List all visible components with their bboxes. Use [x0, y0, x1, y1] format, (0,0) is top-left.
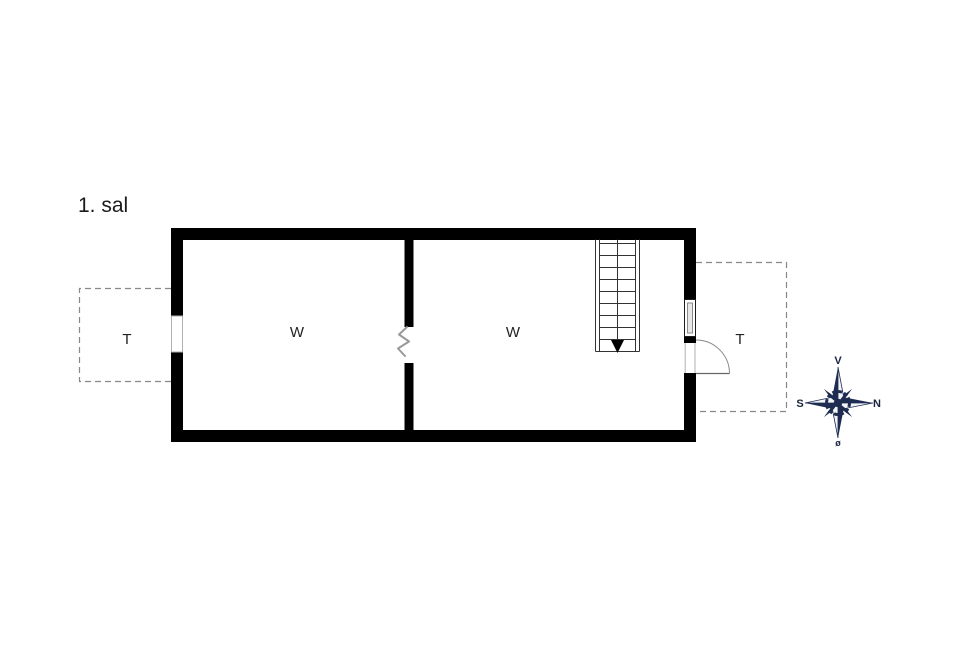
compass-label-east: ø: [835, 438, 841, 448]
door-swing-arc: [696, 340, 730, 374]
compass-label-south: S: [796, 398, 803, 410]
wall-west-upper: [171, 228, 183, 316]
interior-wall-lower: [405, 363, 414, 431]
terrace-east: T: [696, 263, 787, 412]
compass-center-dot: [834, 399, 842, 407]
interior-wall: [398, 240, 414, 431]
terrace-east-label: T: [735, 331, 744, 348]
compass-rose-icon: [805, 367, 873, 438]
wall-north: [171, 228, 696, 240]
floor-title: 1. sal: [78, 194, 128, 217]
window-glazing: [688, 303, 693, 333]
terrace-west: T: [80, 289, 172, 382]
wall-east-lower: [684, 373, 696, 442]
terrace-west-label: T: [122, 331, 131, 348]
east-door: [685, 340, 729, 374]
wall-opening-zigzag-icon: [398, 327, 409, 356]
room-east-label: W: [506, 324, 521, 341]
room-west-label: W: [290, 324, 305, 341]
wall-south: [171, 430, 696, 442]
east-window: [685, 300, 696, 337]
floor-plan-page: 1. sal T T: [0, 0, 960, 640]
floor-plan-canvas: 1. sal T T: [0, 0, 960, 640]
interior-wall-upper: [405, 240, 414, 327]
wall-east-upper: [684, 228, 696, 299]
staircase: [596, 240, 640, 354]
west-wall-opening: [172, 316, 183, 352]
wall-east-stub: [684, 336, 696, 343]
compass-label-north: N: [873, 398, 881, 410]
wall-west-lower: [171, 352, 183, 442]
compass-label-west: V: [834, 355, 842, 367]
